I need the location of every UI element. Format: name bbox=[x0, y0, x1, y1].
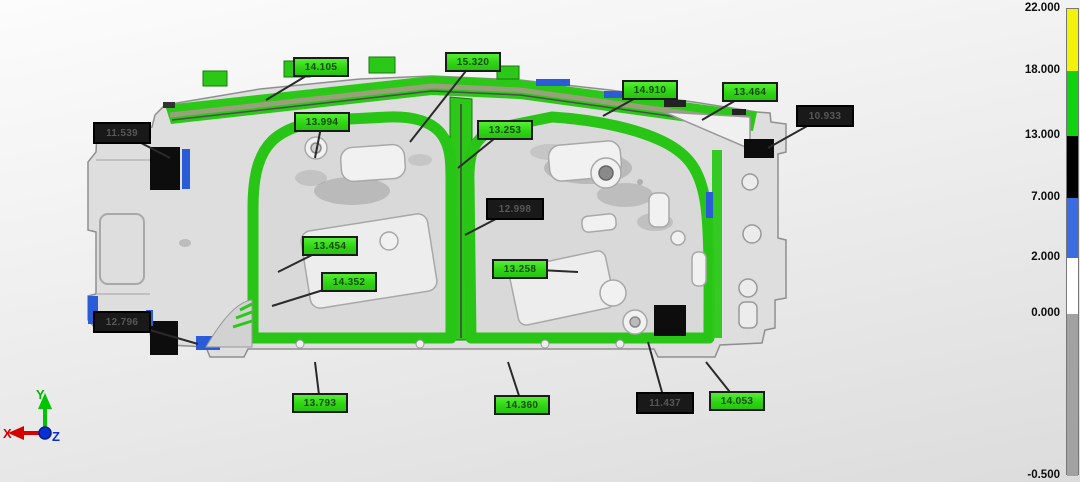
measurement-label[interactable]: 11.539 bbox=[93, 122, 151, 144]
axis-triad[interactable]: Y X Z bbox=[0, 385, 90, 465]
colorbar-tick-label: 7.000 bbox=[1031, 191, 1060, 203]
measurement-label[interactable]: 11.437 bbox=[636, 392, 694, 414]
measurement-label[interactable]: 14.053 bbox=[709, 391, 765, 411]
colorbar-tick-label: -0.500 bbox=[1027, 469, 1060, 481]
measurement-label[interactable]: 13.253 bbox=[477, 120, 533, 140]
colorbar-segment bbox=[1067, 314, 1078, 476]
colorbar-tick-label: 2.000 bbox=[1031, 251, 1060, 263]
colorbar-tick-label: 18.000 bbox=[1025, 64, 1060, 76]
measurement-label[interactable]: 14.910 bbox=[622, 80, 678, 100]
colorbar-segment bbox=[1067, 258, 1078, 314]
color-scale-bar[interactable] bbox=[1066, 8, 1079, 475]
measurement-label[interactable]: 13.464 bbox=[722, 82, 778, 102]
z-axis-label: Z bbox=[52, 429, 60, 444]
measurement-label[interactable]: 13.454 bbox=[302, 236, 358, 256]
measurement-label[interactable]: 12.998 bbox=[486, 198, 544, 220]
inspection-viewport[interactable]: Y X Z 14.10515.32014.91013.46410.93311.5… bbox=[0, 0, 1080, 482]
measurement-label[interactable]: 15.320 bbox=[445, 52, 501, 72]
right-green-strip bbox=[712, 150, 722, 338]
y-axis-label: Y bbox=[36, 387, 45, 402]
colorbar-tick-label: 0.000 bbox=[1031, 307, 1060, 319]
measurement-label[interactable]: 13.793 bbox=[292, 393, 348, 413]
measurement-label[interactable]: 13.258 bbox=[492, 259, 548, 279]
colorbar-tick-label: 13.000 bbox=[1025, 129, 1060, 141]
measurement-label[interactable]: 14.105 bbox=[293, 57, 349, 77]
colorbar-tick-label: 22.000 bbox=[1025, 2, 1060, 14]
measurement-label[interactable]: 12.796 bbox=[93, 311, 151, 333]
measurement-label[interactable]: 10.933 bbox=[796, 105, 854, 127]
z-axis-dot bbox=[39, 427, 51, 439]
measurement-label[interactable]: 14.360 bbox=[494, 395, 550, 415]
measurement-label[interactable]: 13.994 bbox=[294, 112, 350, 132]
measurement-label[interactable]: 14.352 bbox=[321, 272, 377, 292]
x-axis-label: X bbox=[3, 426, 12, 441]
blue-patch-right bbox=[706, 192, 713, 218]
colorbar-segment bbox=[1067, 9, 1078, 71]
colorbar-segment bbox=[1067, 198, 1078, 258]
colorbar-segment bbox=[1067, 136, 1078, 198]
colorbar-segment bbox=[1067, 71, 1078, 136]
